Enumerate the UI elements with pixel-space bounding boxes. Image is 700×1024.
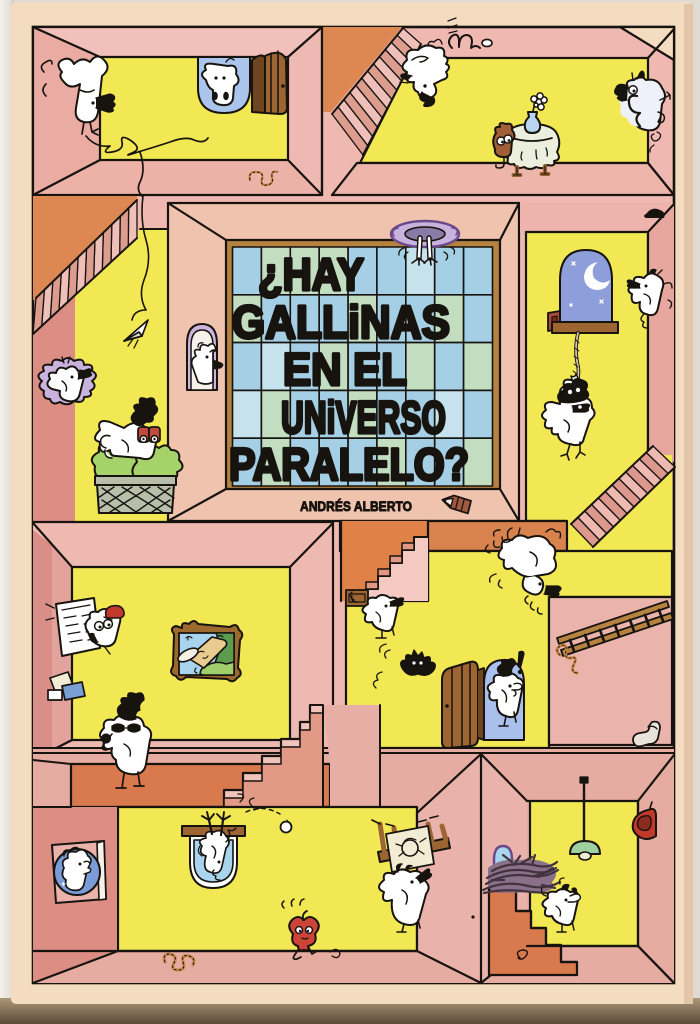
- svg-text:PARALELO?: PARALELO?: [229, 439, 469, 490]
- svg-text:ANDRÉS ALBERTO: ANDRÉS ALBERTO: [300, 498, 412, 514]
- svg-text:UNiVERSO: UNiVERSO: [281, 392, 446, 443]
- svg-text:GALLiNAS: GALLiNAS: [232, 296, 450, 348]
- svg-text:EN EL: EN EL: [283, 344, 407, 395]
- svg-text:¿HAY: ¿HAY: [258, 249, 364, 300]
